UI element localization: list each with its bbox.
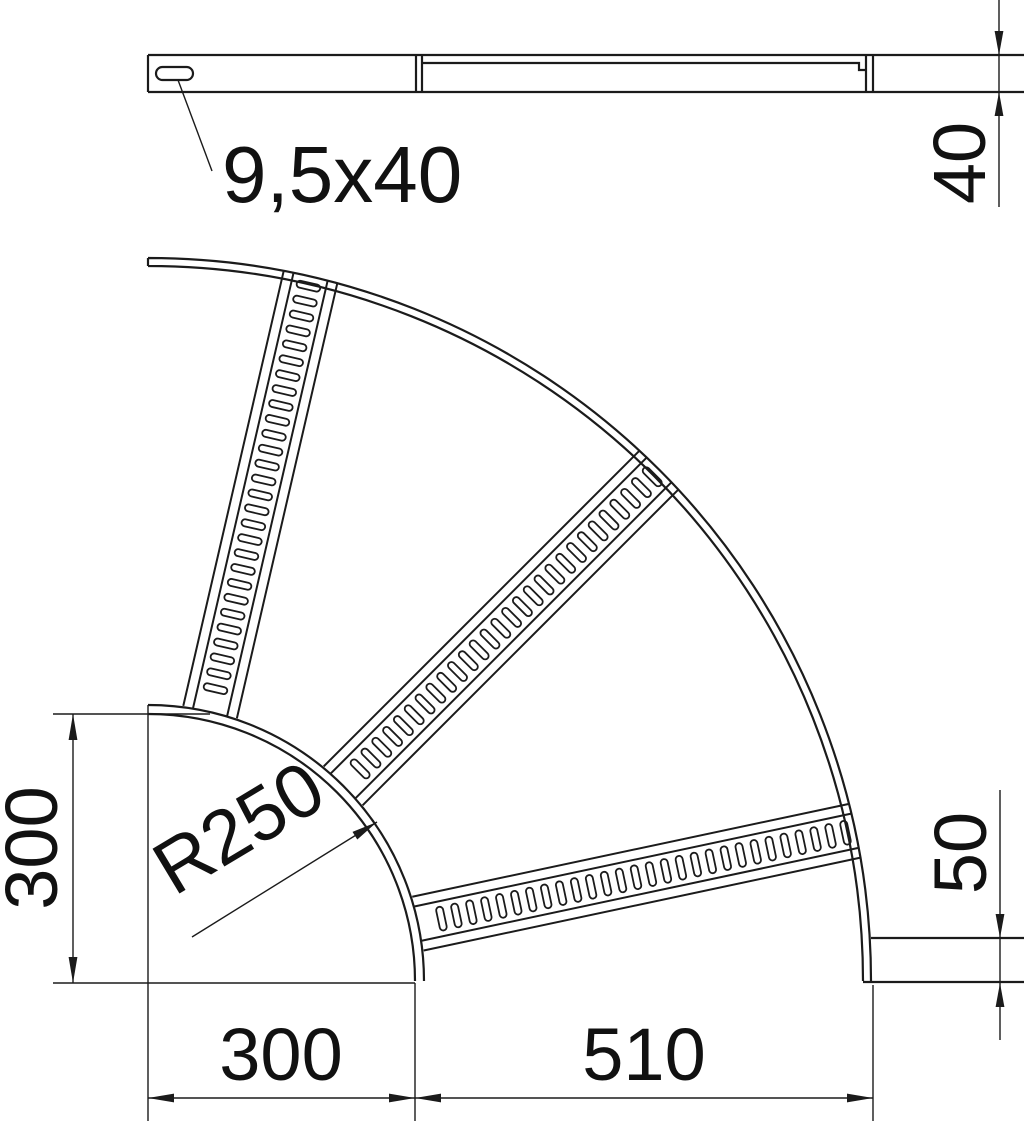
dim-300-left-label: 300: [0, 786, 73, 909]
dim-300-bottom-label: 300: [219, 1013, 342, 1096]
dim-arrow: [148, 1094, 174, 1103]
ladder-rung: [324, 451, 678, 805]
slot-leader-line: [178, 80, 212, 171]
rail-joint-left: [416, 55, 422, 92]
dim-arrow: [995, 31, 1004, 55]
dim-arrow: [996, 983, 1005, 1007]
rail-joint-right: [866, 55, 873, 92]
ladder-rung: [412, 804, 860, 951]
rail-flange-line: [422, 63, 866, 70]
rail-outline: [148, 55, 1024, 92]
dim-50-label: 50: [919, 812, 1002, 894]
ladder-rung: [183, 271, 337, 718]
rail-slot: [156, 67, 193, 80]
rail-side-view: 9,5x40 40: [148, 0, 1024, 219]
dim-arrow: [847, 1094, 873, 1103]
dim-arrow: [389, 1094, 415, 1103]
dim-arrow: [415, 1094, 441, 1103]
dim-arrow: [69, 957, 78, 983]
dim-510-label: 510: [582, 1013, 705, 1096]
slot-label: 9,5x40: [222, 130, 462, 219]
technical-drawing-page: 9,5x40 40 300 300 510 50: [0, 0, 1024, 1121]
dim-arrow: [995, 92, 1004, 116]
dim-arrow: [996, 914, 1005, 938]
dim-arrow: [69, 714, 78, 740]
dim-40-label: 40: [918, 122, 1001, 204]
bend-plan-view: [148, 258, 1024, 982]
radius-label: R250: [139, 745, 339, 911]
drawing-canvas: 9,5x40 40 300 300 510 50: [0, 0, 1024, 1121]
